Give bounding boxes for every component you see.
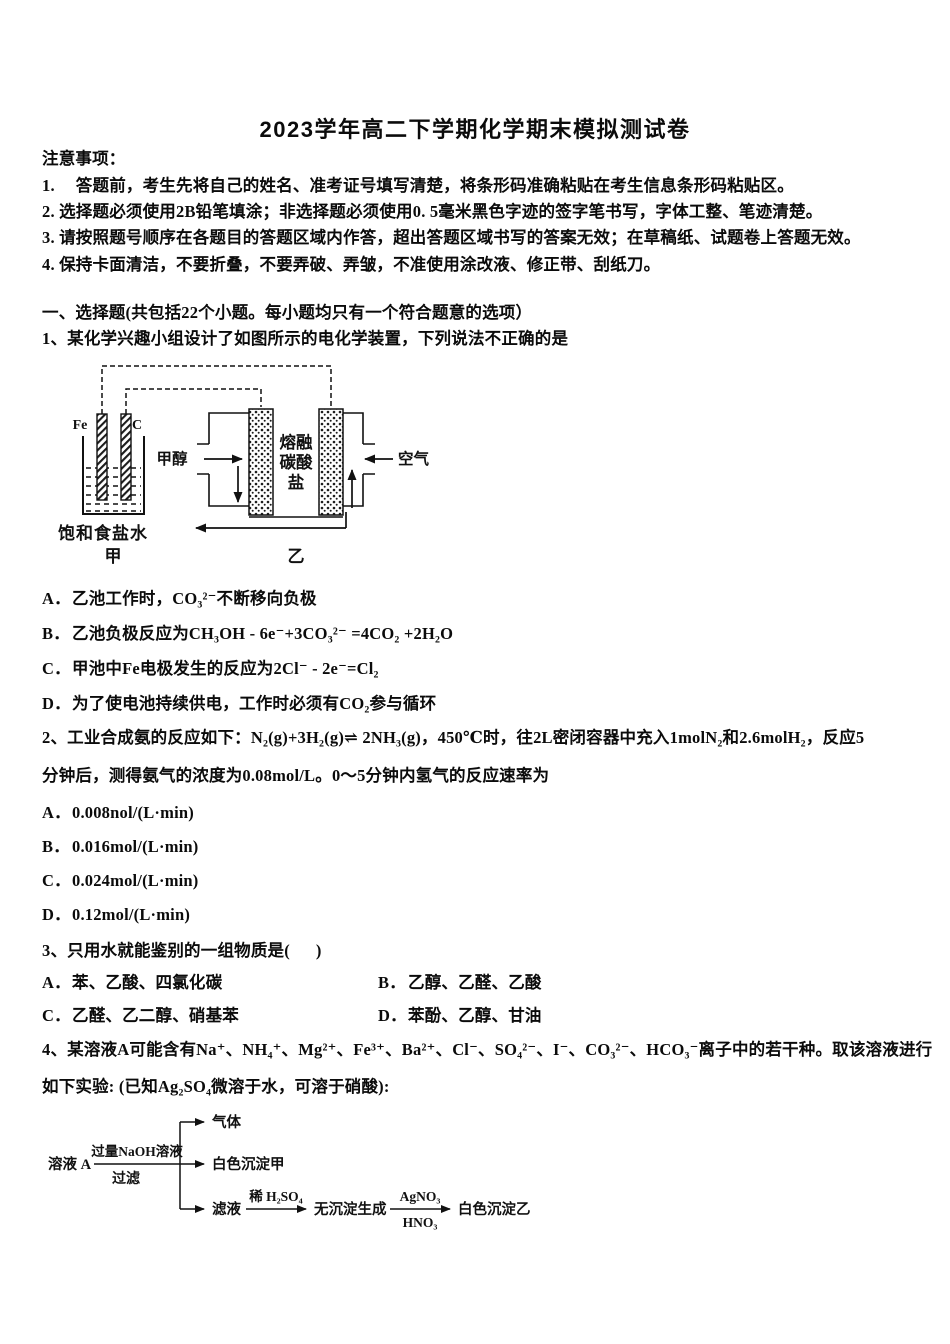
q3-option-d-text: 苯酚、乙醇、甘油 [408, 1006, 542, 1025]
q3-option-b-label: B． [378, 972, 408, 994]
fuel-cell-cathode [319, 409, 343, 515]
wire-outer-dashed [102, 366, 331, 414]
flow-step1-reagent: 过量NaOH溶液 [91, 1143, 183, 1159]
notice-item-3: 3. 请按照题号顺序在各题目的答题区域内作答，超出答题区域书写的答案无效；在草稿… [42, 227, 861, 249]
q3-option-d-label: D． [378, 1005, 408, 1027]
q1-option-b-label: B． [42, 623, 72, 645]
q3-option-a: A．苯、乙酸、四氯化碳 [42, 972, 222, 994]
q3-option-a-label: A． [42, 972, 72, 994]
fuel-cell-anode [249, 409, 273, 515]
q2-option-c: C．0.024mol/(L·min) [42, 870, 199, 892]
q2-option-d: D．0.12mol/(L·min) [42, 904, 190, 926]
flow-precipitate-b-label: 白色沉淀乙 [458, 1200, 531, 1218]
q1-electrochemistry-diagram: Fe C 熔融 碳酸 盐 甲醇 空气 饱和食盐水 甲 乙 [56, 356, 476, 568]
q2-option-a-label: A． [42, 802, 72, 824]
q1-option-d: D．为了使电池持续供电，工作时必须有CO₂参与循环 [42, 693, 436, 715]
methanol-label: 甲醇 [156, 449, 188, 468]
q2-option-c-text: 0.024mol/(L·min) [72, 871, 199, 890]
notice-item-2: 2. 选择题必须使用2B铅笔填涂；非选择题必须使用0. 5毫米黑色字迹的签字笔书… [42, 201, 822, 223]
exam-paper-page: 2023学年高二下学期化学期末模拟测试卷 注意事项： 1. 答题前，考生先将自己… [0, 0, 950, 1344]
beaker-outline [83, 436, 144, 514]
q2-option-a-text: 0.008nol/(L·min) [72, 803, 194, 822]
cell-jia-caption: 甲 [105, 547, 122, 566]
q3-option-c-text: 乙醛、乙二醇、硝基苯 [72, 1006, 239, 1025]
q3-option-d: D．苯酚、乙醇、甘油 [378, 1005, 542, 1027]
q4-stem-line1: 4、某溶液A可能含有Na⁺、NH₄⁺、Mg²⁺、Fe³⁺、Ba²⁺、Cl⁻、SO… [42, 1039, 932, 1061]
brine-caption: 饱和食盐水 [58, 523, 148, 543]
q1-option-a-text: 乙池工作时，CO₃²⁻不断移向负极 [72, 589, 317, 608]
q4-stem-line2: 如下实验: (已知Ag₂SO₄微溶于水，可溶于硝酸): [42, 1076, 390, 1098]
q2-option-b-label: B． [42, 836, 72, 858]
q1-option-d-text: 为了使电池持续供电，工作时必须有CO₂参与循环 [72, 694, 436, 713]
notice-item-1: 1. 答题前，考生先将自己的姓名、准考证号填写清楚，将条形码准确粘贴在考生信息条… [42, 175, 794, 197]
q3-option-a-text: 苯、乙酸、四氯化碳 [72, 973, 222, 992]
q1-option-c-text: 甲池中Fe电极发生的反应为2Cl⁻ - 2e⁻=Cl₂ [72, 659, 379, 678]
flow-no-precipitate-label: 无沉淀生成 [314, 1200, 387, 1218]
q3-option-c: C．乙醛、乙二醇、硝基苯 [42, 1005, 239, 1027]
wire-inner-dashed [126, 389, 261, 414]
notice-heading: 注意事项： [42, 148, 126, 170]
q3-option-b-text: 乙醇、乙醛、乙酸 [408, 973, 542, 992]
fe-electrode [97, 414, 107, 500]
q2-option-b: B．0.016mol/(L·min) [42, 836, 199, 858]
cell-yi-caption: 乙 [288, 547, 305, 566]
section-heading: 一、选择题(共包括22个小题。每小题均只有一个符合题意的选项） [42, 302, 532, 324]
flow-gas-label: 气体 [211, 1113, 241, 1131]
q2-option-d-text: 0.12mol/(L·min) [72, 905, 190, 924]
air-label: 空气 [398, 449, 430, 468]
q2-stem-line1: 2、工业合成氨的反应如下：N₂(g)+3H₂(g)⇌ 2NH₃(g)，450℃时… [42, 727, 864, 749]
page-title: 2023学年高二下学期化学期末模拟测试卷 [0, 112, 950, 144]
flow-filtrate-label: 滤液 [212, 1200, 241, 1218]
notice-item-4: 4. 保持卡面清洁，不要折叠，不要弄破、弄皱，不准使用涂改液、修正带、刮纸刀。 [42, 254, 660, 276]
electrolyte-label-line1: 熔融 [280, 432, 314, 452]
q2-option-c-label: C． [42, 870, 72, 892]
q1-option-a: A．乙池工作时，CO₃²⁻不断移向负极 [42, 588, 317, 610]
brine-liquid [86, 468, 141, 511]
q1-option-a-label: A． [42, 588, 72, 610]
q1-option-c: C．甲池中Fe电极发生的反应为2Cl⁻ - 2e⁻=Cl₂ [42, 658, 379, 680]
flow-step3-reagent-below: HNO₃ [403, 1215, 438, 1230]
electrolyte-label-line2: 碳酸 [280, 452, 314, 472]
flow-step3-reagent-above: AgNO₃ [400, 1189, 441, 1204]
q3-option-b: B．乙醇、乙醛、乙酸 [378, 972, 542, 994]
c-electrode [121, 414, 131, 500]
q1-stem: 1、某化学兴趣小组设计了如图所示的电化学装置，下列说法不正确的是 [42, 328, 568, 350]
flow-precipitate-a-label: 白色沉淀甲 [212, 1155, 285, 1173]
q3-option-c-label: C． [42, 1005, 72, 1027]
q1-option-d-label: D． [42, 693, 72, 715]
electrolyte-label-line3: 盐 [288, 472, 305, 492]
q2-option-b-text: 0.016mol/(L·min) [72, 837, 199, 856]
c-electrode-label: C [132, 418, 142, 433]
q3-stem: 3、只用水就能鉴别的一组物质是( ) [42, 940, 322, 962]
q4-experiment-flowchart: 溶液 A 过量NaOH溶液 过滤 气体 白色沉淀甲 滤液 稀 H₂SO₄ 无沉淀… [34, 1112, 604, 1247]
fe-electrode-label: Fe [73, 418, 88, 433]
q1-option-c-label: C． [42, 658, 72, 680]
q2-option-a: A．0.008nol/(L·min) [42, 802, 194, 824]
q2-option-d-label: D． [42, 904, 72, 926]
flow-step2-reagent: 稀 H₂SO₄ [249, 1188, 302, 1204]
q2-stem-line2: 分钟后，测得氨气的浓度为0.08mol/L。0～5分钟内氢气的反应速率为 [42, 765, 549, 787]
q1-option-b-text: 乙池负极反应为CH₃OH - 6e⁻+3CO₃²⁻ =4CO₂ +2H₂O [72, 624, 453, 643]
flow-solution-a: 溶液 A [48, 1155, 92, 1173]
q1-option-b: B．乙池负极反应为CH₃OH - 6e⁻+3CO₃²⁻ =4CO₂ +2H₂O [42, 623, 453, 645]
flow-step1-filter: 过滤 [112, 1170, 140, 1187]
